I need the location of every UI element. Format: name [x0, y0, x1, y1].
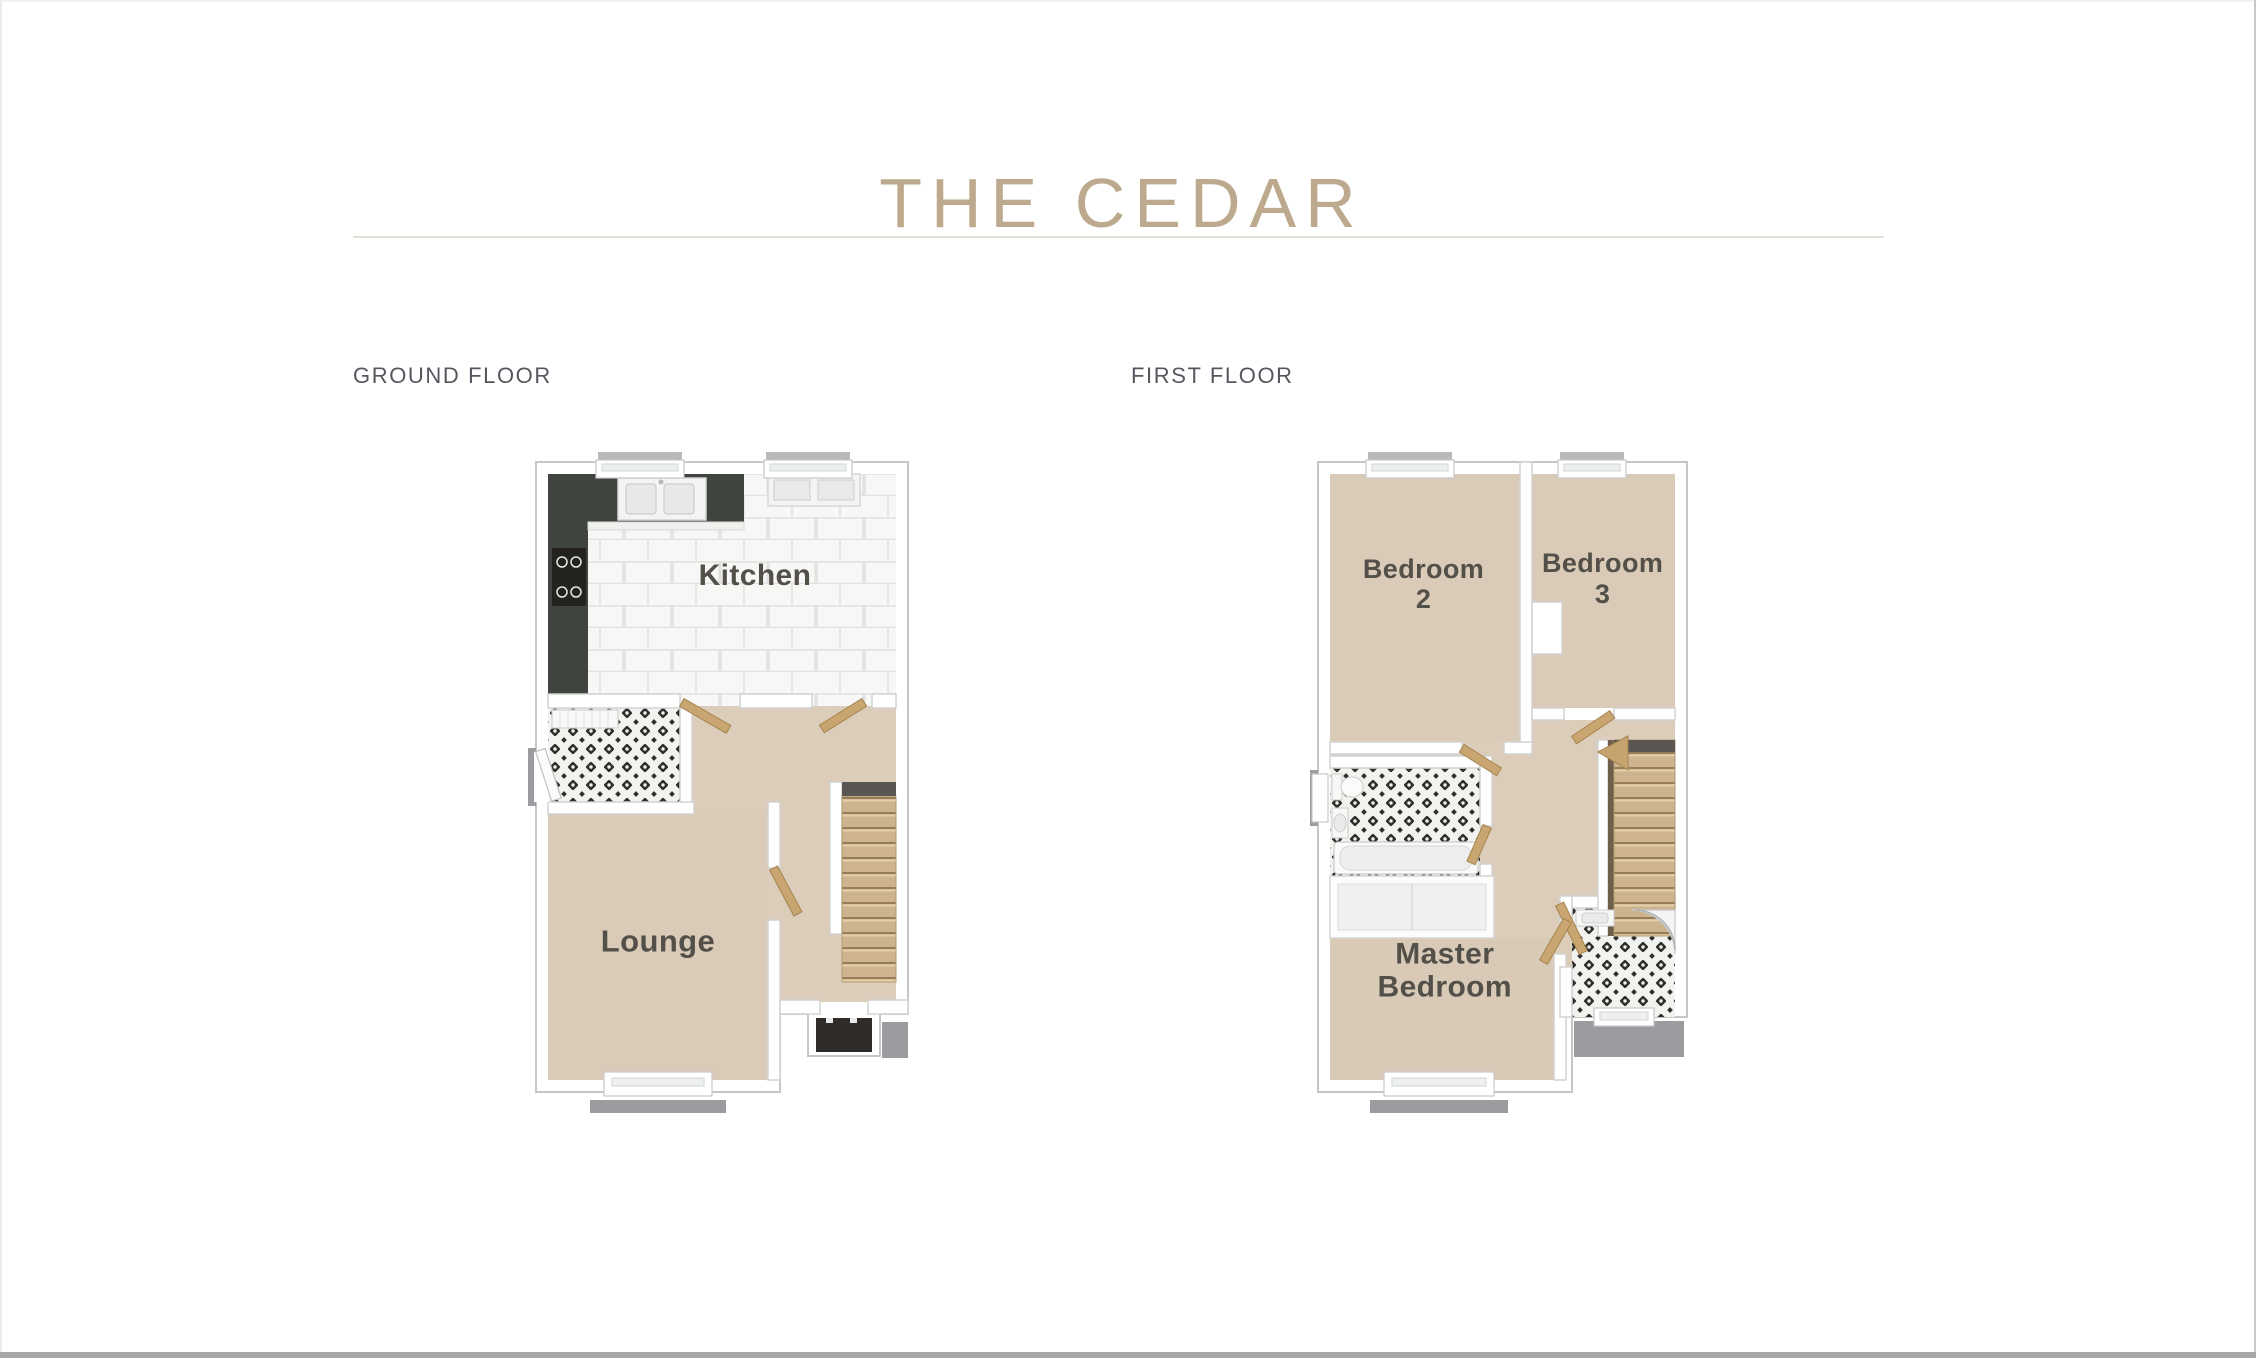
ff-bathroom-window: [1594, 1008, 1654, 1026]
title-divider: [353, 236, 1884, 238]
ground-floor-drawing: [528, 452, 916, 1117]
gf-sink: [618, 478, 706, 520]
ff-master-bay-window: [1370, 1072, 1508, 1113]
bedroom3-label: Bedroom 3: [1542, 548, 1663, 608]
window-edge-top: [0, 0, 2256, 2]
gf-porch-step: [882, 1022, 908, 1058]
master-label-line1: Master: [1395, 937, 1494, 970]
kitchen-label: Kitchen: [699, 559, 812, 593]
first-floor-plan: Bedroom 2 Bedroom 3 Master Bedroom: [1310, 452, 1695, 1117]
gf-window-top-right: [764, 452, 852, 478]
lounge-label: Lounge: [601, 925, 715, 960]
gf-front-door: [816, 1018, 872, 1052]
ff-window-bedroom3: [1558, 452, 1626, 478]
gf-radiator: [552, 710, 618, 728]
page-title: THE CEDAR: [0, 163, 2244, 243]
gf-window-top-left: [596, 452, 684, 478]
bedroom2-label-line1: Bedroom: [1363, 553, 1484, 583]
ff-cupboard: [1330, 876, 1494, 938]
ground-floor-label: GROUND FLOOR: [353, 363, 552, 389]
gf-hob: [552, 548, 586, 606]
gf-staircase: [842, 782, 896, 982]
ff-window-bedroom2: [1366, 452, 1454, 478]
ground-floor-plan: Kitchen Lounge: [528, 452, 916, 1117]
master-label-line2: Bedroom: [1378, 971, 1512, 1004]
ff-staircase: [1598, 736, 1675, 936]
bedroom3-label-line2: 3: [1595, 578, 1610, 608]
gf-appliance-unit: [768, 474, 860, 506]
first-floor-label: FIRST FLOOR: [1131, 363, 1294, 389]
bedroom3-label-line1: Bedroom: [1542, 548, 1663, 578]
bedroom2-label-line2: 2: [1416, 584, 1431, 614]
master-bedroom-label: Master Bedroom: [1378, 937, 1512, 1004]
window-bottom-bar: [0, 1352, 2256, 1358]
ff-ensuite-window: [1310, 770, 1328, 826]
bedroom2-label: Bedroom 2: [1363, 553, 1484, 613]
gf-lounge-bay-window: [590, 1072, 726, 1113]
